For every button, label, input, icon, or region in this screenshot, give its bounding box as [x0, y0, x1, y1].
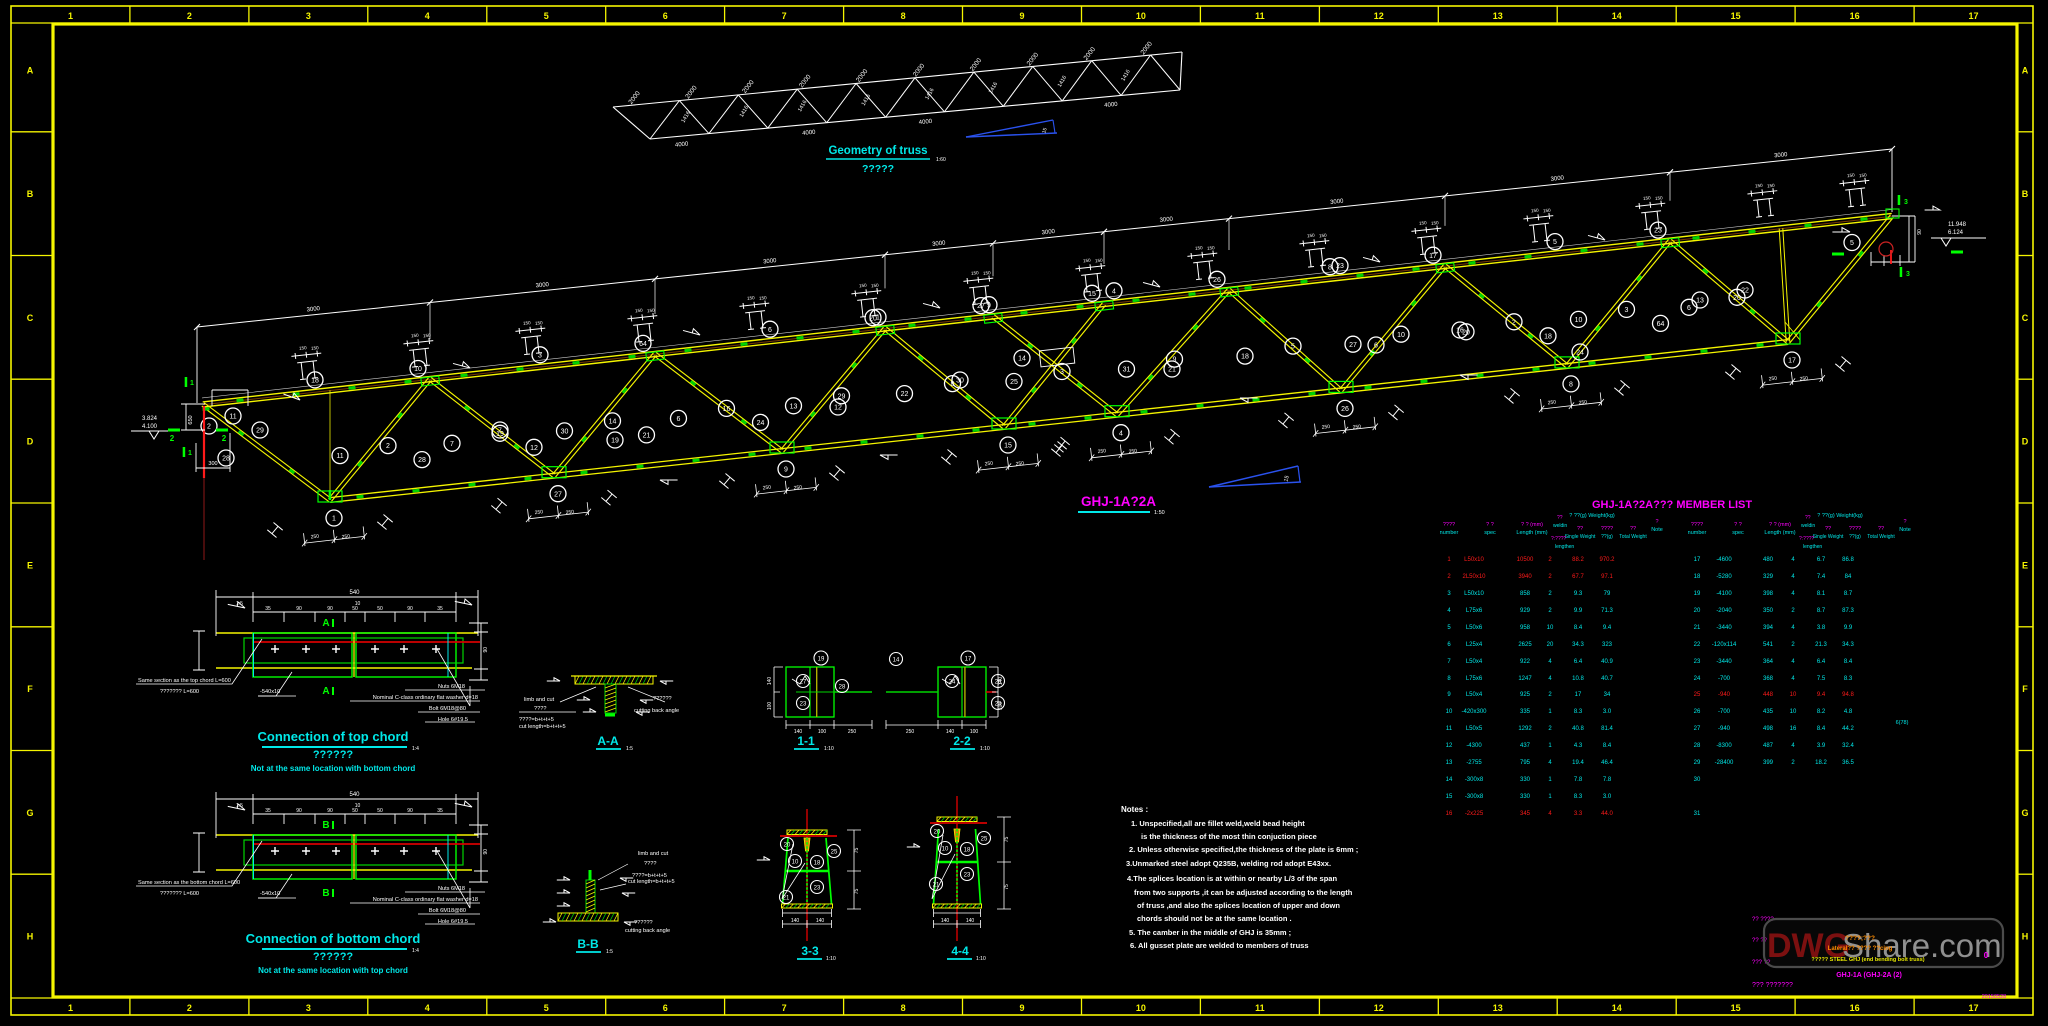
svg-text:795: 795: [1520, 760, 1531, 766]
svg-text:Geometry of truss: Geometry of truss: [828, 145, 927, 157]
svg-text:97.1: 97.1: [1601, 574, 1613, 580]
svg-text:11: 11: [229, 414, 236, 421]
svg-text:64: 64: [639, 341, 647, 348]
svg-text:14: 14: [1612, 11, 1622, 21]
svg-text:D: D: [2022, 437, 2029, 447]
svg-text:13: 13: [1493, 11, 1503, 21]
svg-text:858: 858: [1520, 591, 1531, 597]
svg-text:12: 12: [1374, 11, 1384, 21]
svg-text:? ? (mm): ? ? (mm): [1769, 522, 1791, 528]
svg-text:250: 250: [1097, 448, 1106, 455]
svg-text:17: 17: [1968, 1003, 1978, 1013]
svg-text:-28400: -28400: [1715, 760, 1734, 766]
svg-text:8.4: 8.4: [1844, 659, 1853, 665]
svg-text:A: A: [322, 686, 329, 697]
svg-text:350: 350: [1763, 608, 1774, 614]
svg-text:16: 16: [723, 406, 731, 413]
svg-text:86.8: 86.8: [1842, 557, 1854, 563]
svg-text:35: 35: [437, 808, 443, 814]
svg-text:24: 24: [1576, 350, 1584, 357]
svg-text:15: 15: [1731, 1003, 1741, 1013]
svg-text:-700: -700: [1718, 676, 1731, 682]
svg-text:18: 18: [814, 861, 821, 867]
svg-text:90: 90: [327, 606, 333, 612]
svg-text:11: 11: [336, 453, 343, 460]
svg-text:G: G: [26, 808, 33, 818]
svg-text:1:10: 1:10: [976, 956, 986, 962]
svg-text:Hole 6#19.5: Hole 6#19.5: [438, 717, 468, 723]
svg-text:12: 12: [834, 405, 842, 412]
svg-text:150: 150: [1419, 220, 1428, 226]
svg-text:7: 7: [450, 441, 454, 448]
svg-text:4.100: 4.100: [142, 424, 158, 430]
svg-text:B-B: B-B: [577, 937, 599, 951]
svg-text:12: 12: [530, 445, 538, 452]
svg-text:weldin: weldin: [1801, 523, 1815, 529]
svg-text:E: E: [27, 560, 33, 570]
svg-text:7.5: 7.5: [1817, 676, 1826, 682]
svg-text:21.3: 21.3: [1815, 642, 1827, 648]
svg-text:26: 26: [1341, 406, 1349, 413]
svg-text:3.3: 3.3: [1574, 811, 1583, 817]
svg-text:-540x10: -540x10: [260, 689, 280, 695]
svg-text:Hole 6#19.5: Hole 6#19.5: [438, 919, 468, 925]
svg-text:3.9: 3.9: [1817, 743, 1826, 749]
svg-text:GHJ-1A?2A??? MEMBER LIST: GHJ-1A?2A??? MEMBER LIST: [1592, 499, 1752, 511]
svg-text:A: A: [2022, 65, 2029, 75]
svg-text:1-1: 1-1: [797, 734, 815, 748]
svg-text:24: 24: [757, 420, 765, 427]
svg-text:17: 17: [1429, 253, 1437, 260]
svg-text:spec: spec: [1732, 530, 1744, 536]
svg-text:1. Unspecified,all are fillet: 1. Unspecified,all are fillet weld,weld …: [1131, 819, 1305, 828]
svg-text:250: 250: [906, 729, 915, 735]
svg-text:Single Weight: Single Weight: [1565, 534, 1596, 540]
svg-text:6: 6: [663, 11, 668, 21]
svg-text:A: A: [322, 618, 329, 629]
svg-text:26: 26: [1694, 709, 1701, 715]
svg-text:1:10: 1:10: [824, 746, 834, 752]
svg-text:??????: ??????: [313, 749, 354, 761]
svg-text:Nuts 6M18: Nuts 6M18: [438, 886, 465, 892]
svg-text:6.124: 6.124: [1948, 230, 1964, 236]
svg-text:????: ????: [534, 706, 546, 712]
svg-text:L50x5: L50x5: [1466, 726, 1483, 732]
svg-text:250: 250: [793, 485, 802, 492]
svg-text:L50x4: L50x4: [1466, 692, 1483, 698]
svg-text:17: 17: [1694, 557, 1701, 563]
svg-text:?????: ?????: [862, 163, 894, 175]
svg-text:21: 21: [643, 433, 651, 440]
svg-text:22: 22: [901, 391, 909, 398]
svg-text:2: 2: [187, 11, 192, 21]
svg-text:140: 140: [966, 918, 975, 924]
svg-text:8: 8: [901, 1003, 906, 1013]
svg-text:9: 9: [987, 302, 991, 309]
svg-text:90: 90: [327, 808, 333, 814]
svg-text:18.2: 18.2: [1815, 760, 1827, 766]
svg-text:1: 1: [68, 11, 73, 21]
svg-text:90: 90: [483, 849, 489, 855]
svg-text:480: 480: [1763, 557, 1774, 563]
svg-text:150: 150: [971, 270, 980, 276]
svg-text:150: 150: [1095, 258, 1104, 264]
svg-text:Length (mm): Length (mm): [1516, 530, 1547, 536]
svg-text:32.4: 32.4: [1842, 743, 1854, 749]
svg-text:23: 23: [1694, 659, 1701, 665]
svg-text:3: 3: [1625, 307, 1629, 314]
svg-text:250: 250: [1128, 448, 1137, 455]
svg-text:Single Weight: Single Weight: [1813, 534, 1844, 540]
svg-text:4: 4: [425, 1003, 430, 1013]
svg-text:50: 50: [377, 808, 383, 814]
svg-text:3: 3: [306, 11, 311, 21]
svg-text:35: 35: [437, 606, 443, 612]
svg-text:is the thickness of the most t: is the thickness of the most thin conjuc…: [1141, 832, 1317, 841]
svg-text:7: 7: [782, 11, 787, 21]
svg-text:11: 11: [1446, 726, 1453, 732]
svg-text:C: C: [2022, 313, 2029, 323]
svg-text:2: 2: [207, 424, 211, 431]
svg-text:44.0: 44.0: [1601, 811, 1613, 817]
svg-text:150: 150: [871, 283, 880, 289]
svg-text:6: 6: [768, 327, 772, 334]
svg-text:448: 448: [1763, 692, 1774, 698]
svg-text:150: 150: [647, 308, 656, 314]
svg-text:2625: 2625: [1518, 642, 1532, 648]
svg-text:Connection of bottom chord: Connection of bottom chord: [246, 931, 421, 946]
svg-text:-120x114: -120x114: [1712, 642, 1737, 648]
svg-text:-5280: -5280: [1716, 574, 1732, 580]
svg-text:150: 150: [411, 333, 420, 339]
svg-text:498: 498: [1763, 726, 1774, 732]
svg-text:limb and cut: limb and cut: [638, 851, 669, 857]
svg-text:4: 4: [1119, 430, 1123, 437]
svg-text:5: 5: [1291, 344, 1295, 351]
svg-text:Not at the same location with: Not at the same location with bottom cho…: [251, 764, 416, 773]
svg-text:150: 150: [535, 320, 544, 326]
svg-text:345: 345: [1520, 811, 1531, 817]
svg-text:GHJ-1A?2A: GHJ-1A?2A: [1081, 494, 1156, 509]
svg-text:20: 20: [1547, 642, 1554, 648]
svg-text:30: 30: [1694, 777, 1701, 783]
svg-text:18: 18: [1694, 574, 1701, 580]
svg-text:6: 6: [1687, 305, 1691, 312]
svg-text:10: 10: [1446, 709, 1453, 715]
svg-text:150: 150: [1755, 183, 1764, 189]
svg-text:150: 150: [523, 320, 532, 326]
svg-text:A-A: A-A: [597, 734, 619, 748]
svg-text:1:5: 1:5: [606, 949, 613, 955]
svg-text:??: ??: [1805, 515, 1811, 521]
svg-text:150: 150: [423, 333, 432, 339]
svg-text:300: 300: [208, 461, 217, 467]
svg-text:L75x6: L75x6: [1466, 608, 1483, 614]
svg-text:8.3: 8.3: [1574, 709, 1583, 715]
svg-text:40.8: 40.8: [1572, 726, 1584, 732]
svg-text:3: 3: [1904, 199, 1908, 206]
svg-text:??????: ??????: [313, 951, 354, 963]
svg-text:10500: 10500: [1517, 557, 1534, 563]
svg-text:150: 150: [1207, 245, 1216, 251]
svg-text:Connection of top chord: Connection of top chord: [258, 729, 409, 744]
svg-text:?: ?: [1903, 519, 1906, 525]
svg-text:from two supports ,it can be a: from two supports ,it can be adjusted ac…: [1134, 888, 1353, 897]
svg-text:Note: Note: [1899, 527, 1911, 533]
svg-text:4: 4: [1112, 288, 1116, 295]
svg-text:6: 6: [677, 416, 681, 423]
svg-text:29: 29: [1694, 760, 1701, 766]
svg-text:19: 19: [1694, 591, 1701, 597]
svg-text:14: 14: [1446, 777, 1453, 783]
svg-text:28: 28: [418, 457, 426, 464]
svg-text:Total Weight: Total Weight: [1619, 534, 1647, 540]
svg-text:18: 18: [1544, 333, 1552, 340]
svg-text:B: B: [322, 888, 329, 899]
svg-text:8.3: 8.3: [1574, 794, 1583, 800]
svg-text:150: 150: [1847, 172, 1856, 178]
svg-text:??????: ??????: [634, 920, 653, 926]
svg-text:Same section as the bottom cho: Same section as the bottom chord L=600: [138, 880, 240, 886]
svg-text:435: 435: [1763, 709, 1774, 715]
svg-text:250: 250: [565, 509, 574, 516]
svg-text:-940: -940: [1718, 692, 1731, 698]
svg-text:330: 330: [1520, 777, 1531, 783]
svg-text:-300x8: -300x8: [1465, 777, 1484, 783]
svg-text:14: 14: [893, 658, 900, 664]
svg-text:23: 23: [814, 886, 821, 892]
svg-text:88.2: 88.2: [1572, 557, 1584, 563]
svg-text:929: 929: [1520, 608, 1531, 614]
svg-text:150: 150: [747, 295, 756, 301]
svg-text:250: 250: [1547, 399, 1556, 406]
svg-text:18: 18: [311, 378, 319, 385]
svg-text:17: 17: [1968, 11, 1978, 21]
svg-text:19.4: 19.4: [1572, 760, 1584, 766]
svg-text:8.4: 8.4: [1603, 743, 1612, 749]
svg-text:150: 150: [1655, 195, 1664, 201]
svg-text:150: 150: [1083, 258, 1092, 264]
svg-text:10.8: 10.8: [1572, 676, 1584, 682]
svg-text:7.8: 7.8: [1603, 777, 1612, 783]
svg-text:7: 7: [782, 1003, 787, 1013]
svg-text:330: 330: [1520, 794, 1531, 800]
svg-text:27: 27: [554, 491, 562, 498]
svg-text:10: 10: [942, 847, 949, 853]
svg-text:7.4: 7.4: [1817, 574, 1826, 580]
svg-text:25: 25: [981, 837, 988, 843]
svg-text:8: 8: [901, 11, 906, 21]
svg-text:13: 13: [1493, 1003, 1503, 1013]
svg-text:2. Unless otherwise specified,: 2. Unless otherwise specified,the thickn…: [1129, 845, 1358, 854]
svg-text:1292: 1292: [1518, 726, 1532, 732]
svg-text:1:10: 1:10: [826, 956, 836, 962]
svg-text:50: 50: [352, 606, 358, 612]
svg-text:34.3: 34.3: [1842, 642, 1854, 648]
svg-text:5: 5: [1553, 239, 1557, 246]
svg-text:150: 150: [1859, 172, 1868, 178]
svg-text:1247: 1247: [1518, 676, 1532, 682]
svg-text:150: 150: [1643, 195, 1652, 201]
svg-text:6(78): 6(78): [1896, 720, 1909, 726]
svg-text:36.5: 36.5: [1842, 760, 1854, 766]
svg-text:50: 50: [352, 808, 358, 814]
svg-text:1:10: 1:10: [980, 746, 990, 752]
svg-text:540: 540: [349, 792, 360, 798]
svg-text:6: 6: [1374, 343, 1378, 350]
svg-text:13: 13: [1446, 760, 1453, 766]
svg-text:87.3: 87.3: [1842, 608, 1854, 614]
svg-text:19: 19: [611, 438, 619, 445]
svg-text:? ? (mm): ? ? (mm): [1521, 522, 1543, 528]
svg-text:28: 28: [1694, 743, 1701, 749]
svg-text:16: 16: [1850, 11, 1860, 21]
svg-text:250: 250: [984, 461, 993, 468]
svg-text:3.Unmarked steel adopt Q235B,: 3.Unmarked steel adopt Q235B, welding ro…: [1126, 859, 1331, 868]
svg-text:6: 6: [663, 1003, 668, 1013]
svg-text:-4300: -4300: [1466, 743, 1482, 749]
svg-text:1:4: 1:4: [412, 948, 419, 954]
svg-text:16: 16: [1850, 1003, 1860, 1013]
svg-text:26: 26: [1213, 277, 1221, 284]
svg-text:GHJ-1A (GHJ-2A (2): GHJ-1A (GHJ-2A (2): [1836, 972, 1902, 979]
svg-text:18: 18: [1241, 354, 1249, 361]
svg-text:1: 1: [190, 380, 194, 387]
svg-text:19: 19: [818, 657, 825, 663]
svg-text:21: 21: [1168, 367, 1176, 374]
svg-text:-3440: -3440: [1716, 625, 1732, 631]
svg-text:3940: 3940: [1518, 574, 1532, 580]
svg-text:22: 22: [1741, 288, 1749, 295]
svg-text:20: 20: [784, 843, 791, 849]
svg-text:16: 16: [1790, 726, 1797, 732]
svg-text:335: 335: [1520, 709, 1531, 715]
svg-text:958: 958: [1520, 625, 1531, 631]
svg-text:150: 150: [759, 295, 768, 301]
svg-text:81.4: 81.4: [1601, 726, 1613, 732]
svg-text:650: 650: [188, 415, 194, 424]
svg-text:5. The camber in the middle of: 5. The camber in the middle of GHJ is 35…: [1129, 928, 1291, 937]
svg-text:970.2: 970.2: [1599, 557, 1615, 563]
svg-text:Not at the same location with: Not at the same location with top chord: [258, 966, 408, 975]
svg-text:2: 2: [187, 1003, 192, 1013]
svg-text:3: 3: [1906, 271, 1910, 278]
svg-text:????: ????: [1691, 522, 1703, 528]
svg-text:??????? L=600: ??????? L=600: [160, 689, 199, 695]
svg-text:cut length=b+t+t+5: cut length=b+t+t+5: [519, 724, 566, 730]
svg-text:Bolt 6M18@80: Bolt 6M18@80: [429, 706, 466, 712]
svg-text:17: 17: [1788, 358, 1796, 365]
svg-text:10: 10: [1575, 317, 1583, 324]
svg-text:??(g): ??(g): [1849, 534, 1861, 540]
svg-text:84: 84: [1845, 574, 1852, 580]
svg-text:31: 31: [1123, 367, 1131, 374]
svg-text:13: 13: [790, 403, 798, 410]
svg-text:925: 925: [1520, 692, 1531, 698]
svg-text:4.3: 4.3: [1574, 743, 1583, 749]
svg-text:25: 25: [831, 850, 838, 856]
svg-text:28: 28: [839, 685, 846, 691]
svg-text:11.948: 11.948: [1948, 222, 1967, 228]
svg-text:7.8: 7.8: [1574, 777, 1583, 783]
svg-text:? ?: ? ?: [1734, 522, 1742, 528]
svg-text:8.4: 8.4: [1574, 625, 1583, 631]
svg-text:34.3: 34.3: [1572, 642, 1584, 648]
svg-text:????: ????: [1601, 526, 1613, 532]
svg-text:250: 250: [1768, 376, 1777, 383]
svg-text:G: G: [2021, 808, 2028, 818]
svg-text:3.824: 3.824: [142, 416, 158, 422]
svg-text:cut length=b+t+t+5: cut length=b+t+t+5: [628, 879, 675, 885]
svg-text:chords should not be at the sa: chords should not be at the same locatio…: [1137, 914, 1292, 923]
svg-text:20: 20: [1694, 608, 1701, 614]
svg-text:394: 394: [1763, 625, 1774, 631]
svg-text:75: 75: [854, 848, 860, 854]
svg-text:250: 250: [1352, 424, 1361, 431]
svg-text:2: 2: [222, 434, 227, 443]
svg-text:4-4: 4-4: [951, 944, 969, 958]
svg-text:140: 140: [941, 918, 950, 924]
svg-text:B: B: [27, 189, 34, 199]
svg-text:1: 1: [876, 315, 880, 322]
svg-text:3: 3: [538, 352, 542, 359]
svg-text:90: 90: [407, 606, 413, 612]
svg-text:spec: spec: [1484, 530, 1496, 536]
svg-text:250: 250: [1578, 399, 1587, 406]
svg-text:8: 8: [1569, 382, 1573, 389]
svg-text:35: 35: [265, 808, 271, 814]
svg-text:10: 10: [1790, 692, 1797, 698]
svg-text:16: 16: [1446, 811, 1453, 817]
svg-text:Length (mm): Length (mm): [1764, 530, 1795, 536]
svg-text:44.2: 44.2: [1842, 726, 1854, 732]
svg-text:250: 250: [310, 534, 319, 541]
svg-text:????: ????: [644, 861, 656, 867]
svg-text:1:60: 1:60: [936, 157, 946, 163]
svg-text:7: 7: [498, 428, 502, 435]
svg-text:????: ????: [1443, 522, 1455, 528]
svg-text:90: 90: [483, 647, 489, 653]
svg-text:150: 150: [1319, 233, 1328, 239]
svg-text:H: H: [27, 932, 34, 942]
svg-text:100: 100: [818, 729, 827, 735]
svg-text:75: 75: [854, 889, 860, 895]
svg-text:15: 15: [1731, 11, 1741, 21]
svg-text:28: 28: [222, 456, 230, 463]
svg-text:40.7: 40.7: [1601, 676, 1613, 682]
svg-text:250: 250: [762, 485, 771, 492]
svg-text:14: 14: [1612, 1003, 1622, 1013]
svg-text:2L50x10: 2L50x10: [1462, 574, 1486, 580]
svg-text:140: 140: [791, 918, 800, 924]
svg-text:????=b+t+t+5: ????=b+t+t+5: [519, 717, 554, 723]
svg-text:368: 368: [1763, 676, 1774, 682]
svg-text:2: 2: [170, 434, 175, 443]
svg-text:number: number: [1688, 530, 1707, 536]
svg-text:9: 9: [1019, 1003, 1024, 1013]
svg-text:17: 17: [965, 657, 972, 663]
svg-text:100: 100: [970, 729, 979, 735]
svg-text:10: 10: [1136, 1003, 1146, 1013]
svg-text:24: 24: [1694, 676, 1701, 682]
svg-text:6.7: 6.7: [1817, 557, 1826, 563]
svg-text:150: 150: [1431, 220, 1440, 226]
svg-text:100: 100: [767, 702, 773, 711]
svg-text:71.3: 71.3: [1601, 608, 1613, 614]
svg-text:540: 540: [349, 590, 360, 596]
svg-text:79: 79: [1604, 591, 1611, 597]
svg-text:15: 15: [1088, 291, 1096, 298]
